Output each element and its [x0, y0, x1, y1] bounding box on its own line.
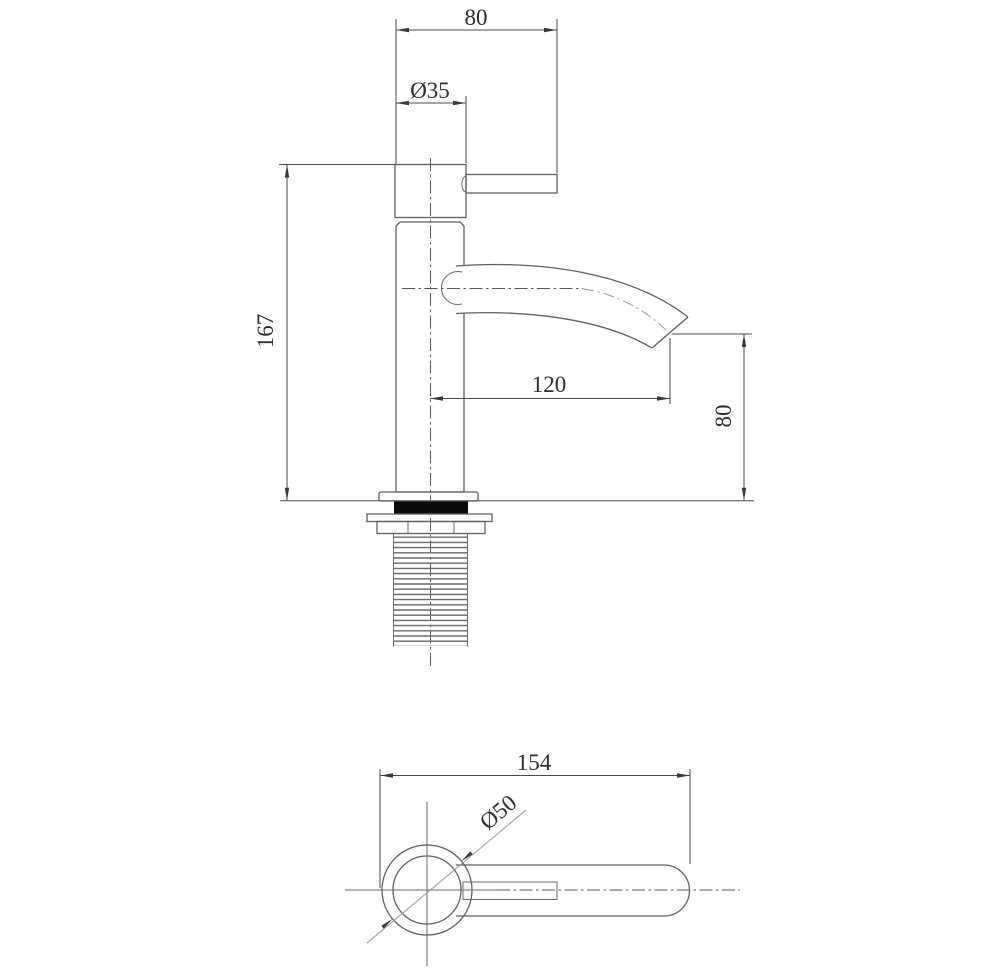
dim-label-top-width: 80 [465, 5, 488, 30]
spout-bottom-curve [456, 313, 652, 348]
faucet-drawing-svg: 80 Ø35 167 120 [0, 0, 1000, 974]
base-flange [379, 492, 478, 501]
arrowhead-right [544, 28, 557, 32]
washer [367, 514, 492, 522]
dim-label-base-diameter: Ø50 [475, 790, 521, 835]
arrowhead-top [285, 165, 289, 178]
dim-label-total-height: 167 [253, 314, 278, 349]
arrowhead-left [396, 101, 409, 105]
dim-label-spout-reach: 120 [532, 372, 567, 397]
dim-label-head-diameter: Ø35 [410, 78, 450, 103]
lever-bar [466, 175, 557, 194]
mounting-hardware [367, 492, 492, 647]
plan-view: 154 Ø50 [345, 750, 740, 966]
spout [402, 265, 688, 348]
dim-label-overall-length: 154 [517, 750, 552, 775]
arrowhead-top [742, 334, 746, 347]
dim-head-diameter: Ø35 [396, 78, 466, 163]
arrowhead-right [657, 396, 670, 400]
arrowhead-left [430, 396, 443, 400]
rubber-gasket [394, 502, 468, 515]
arrowhead-bottom [285, 488, 289, 501]
spout-top-curve [456, 265, 688, 317]
arrowhead-left [396, 28, 409, 32]
arrowhead-bottom [742, 488, 746, 501]
lever-handle-side [462, 175, 557, 194]
lever-stem-slot [463, 882, 557, 900]
arrowhead-lower [381, 919, 392, 929]
side-view: 80 Ø35 167 120 [253, 5, 754, 666]
dim-base-diameter: Ø50 [367, 790, 526, 943]
technical-drawing-canvas: 80 Ø35 167 120 [0, 0, 1000, 974]
leader-line [367, 810, 526, 943]
dim-outlet-height: 80 [672, 334, 752, 501]
arrowhead-right [453, 101, 466, 105]
dim-spout-reach: 120 [430, 338, 670, 404]
arrowhead-left [380, 773, 393, 777]
dim-label-outlet-height: 80 [711, 405, 736, 428]
arrowhead-right [677, 773, 690, 777]
dim-total-height: 167 [253, 165, 395, 501]
